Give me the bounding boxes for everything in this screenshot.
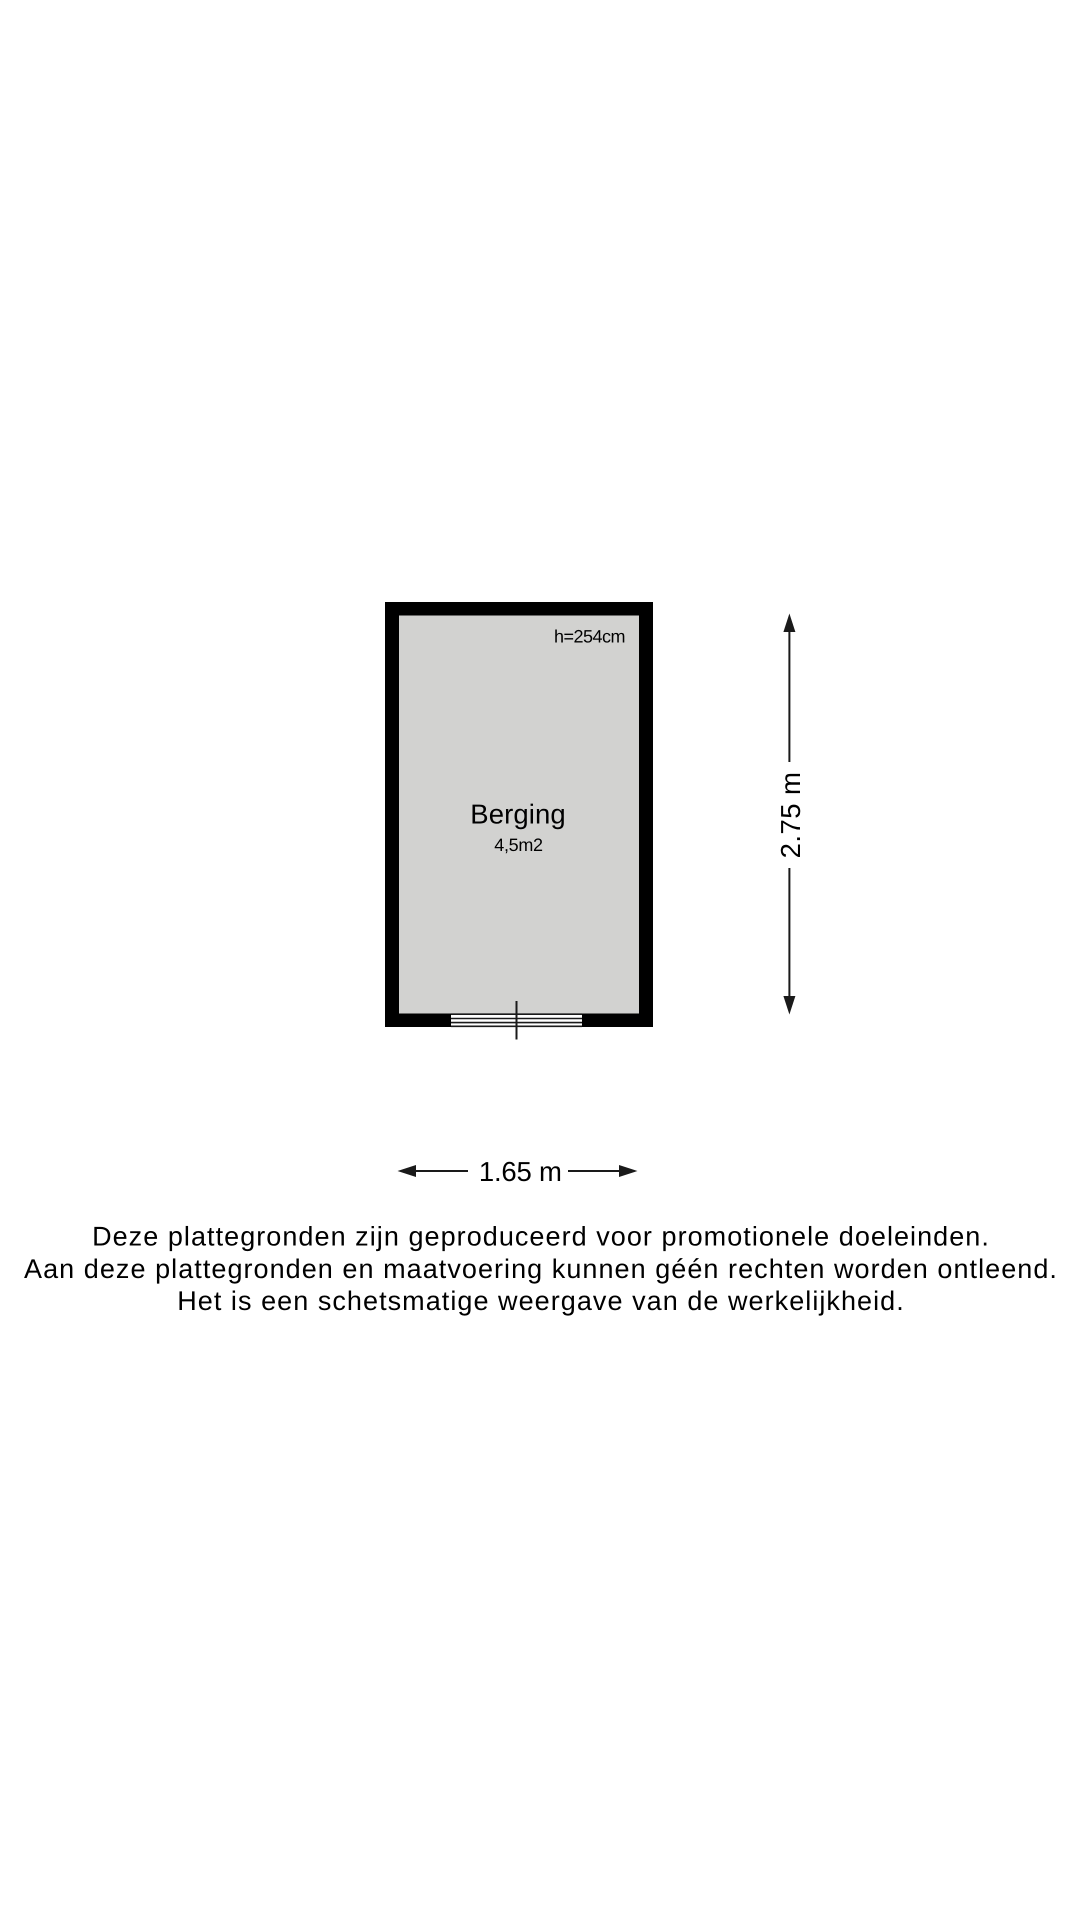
svg-text:Deze plattegronden zijn geprod: Deze plattegronden zijn geproduceerd voo…	[92, 1222, 990, 1252]
svg-text:Berging: Berging	[470, 799, 566, 830]
svg-text:Het is een schetsmatige weerga: Het is een schetsmatige weergave van de …	[177, 1286, 905, 1316]
svg-text:4,5m2: 4,5m2	[494, 835, 543, 855]
svg-text:1.65 m: 1.65 m	[479, 1156, 562, 1187]
svg-text:h=254cm: h=254cm	[554, 627, 625, 647]
svg-text:Aan deze plattegronden en maat: Aan deze plattegronden en maatvoering ku…	[24, 1254, 1058, 1284]
svg-text:2.75 m: 2.75 m	[775, 772, 806, 859]
